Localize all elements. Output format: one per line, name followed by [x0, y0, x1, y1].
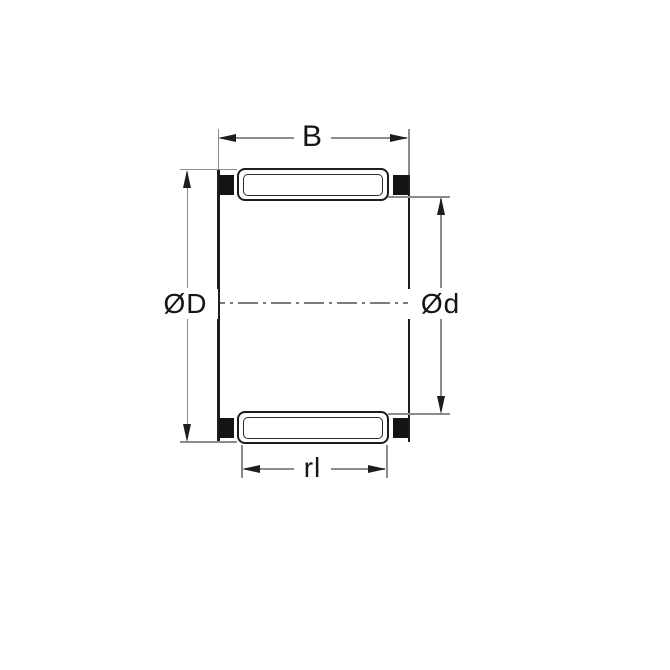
dim-od-arrowhead-down — [183, 424, 191, 442]
dim-id-arrowhead-up — [437, 197, 445, 215]
dim-b-arrowhead-left — [218, 134, 236, 142]
dim-od-line-top — [187, 172, 189, 288]
dim-od-label: ØD — [153, 289, 218, 319]
dim-rl-arrowhead-left — [242, 465, 260, 473]
dim-id-label: Ød — [408, 289, 473, 319]
dim-b-arrowhead-right — [390, 134, 408, 142]
dim-od-line-bottom — [187, 319, 189, 439]
bottom-needle-roller-inner — [243, 417, 383, 439]
cage-block-top-left — [219, 175, 234, 195]
axis-centerline — [205, 302, 417, 304]
top-needle-roller-inner — [243, 174, 383, 196]
dim-rl-extension-left — [241, 445, 243, 478]
cage-block-bottom-left — [219, 418, 234, 438]
dim-id-arrowhead-down — [437, 396, 445, 414]
cage-block-bottom-right — [393, 418, 408, 438]
dim-b-label: B — [294, 122, 331, 152]
dim-rl-extension-right — [386, 445, 388, 478]
dim-b-extension-right — [408, 129, 410, 175]
bearing-drawing-canvas: B ØD Ød rl — [0, 0, 670, 670]
dim-rl-arrowhead-right — [368, 465, 386, 473]
dim-rl-label: rl — [294, 453, 331, 483]
dim-od-arrowhead-up — [183, 170, 191, 188]
cage-block-top-right — [393, 175, 408, 195]
